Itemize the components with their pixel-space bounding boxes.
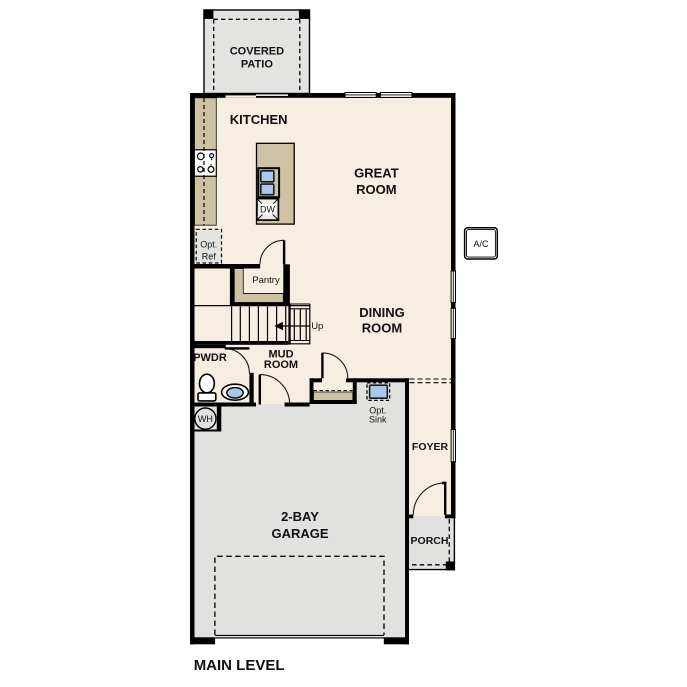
svg-text:COVERED: COVERED — [230, 45, 284, 57]
svg-text:FOYER: FOYER — [412, 441, 449, 453]
svg-text:Ref: Ref — [202, 251, 217, 261]
svg-text:KITCHEN: KITCHEN — [230, 112, 288, 127]
svg-text:WH: WH — [198, 414, 213, 424]
svg-text:ROOM: ROOM — [264, 359, 298, 371]
svg-text:Up: Up — [311, 321, 323, 332]
svg-text:PATIO: PATIO — [241, 59, 273, 71]
svg-text:DINING: DINING — [359, 305, 405, 320]
svg-text:MAIN LEVEL: MAIN LEVEL — [194, 657, 285, 674]
svg-text:PORCH: PORCH — [411, 535, 449, 547]
svg-text:ROOM: ROOM — [362, 321, 402, 336]
svg-text:ROOM: ROOM — [356, 182, 396, 197]
svg-text:GREAT: GREAT — [354, 166, 399, 181]
svg-text:Opt.: Opt. — [200, 239, 217, 249]
svg-text:A/C: A/C — [473, 239, 489, 249]
svg-text:Pantry: Pantry — [252, 275, 280, 286]
svg-text:DW: DW — [260, 205, 275, 215]
svg-text:Sink: Sink — [369, 414, 387, 424]
svg-text:PWDR: PWDR — [193, 352, 227, 364]
svg-text:2-BAY: 2-BAY — [281, 509, 319, 524]
svg-text:GARAGE: GARAGE — [271, 526, 328, 541]
